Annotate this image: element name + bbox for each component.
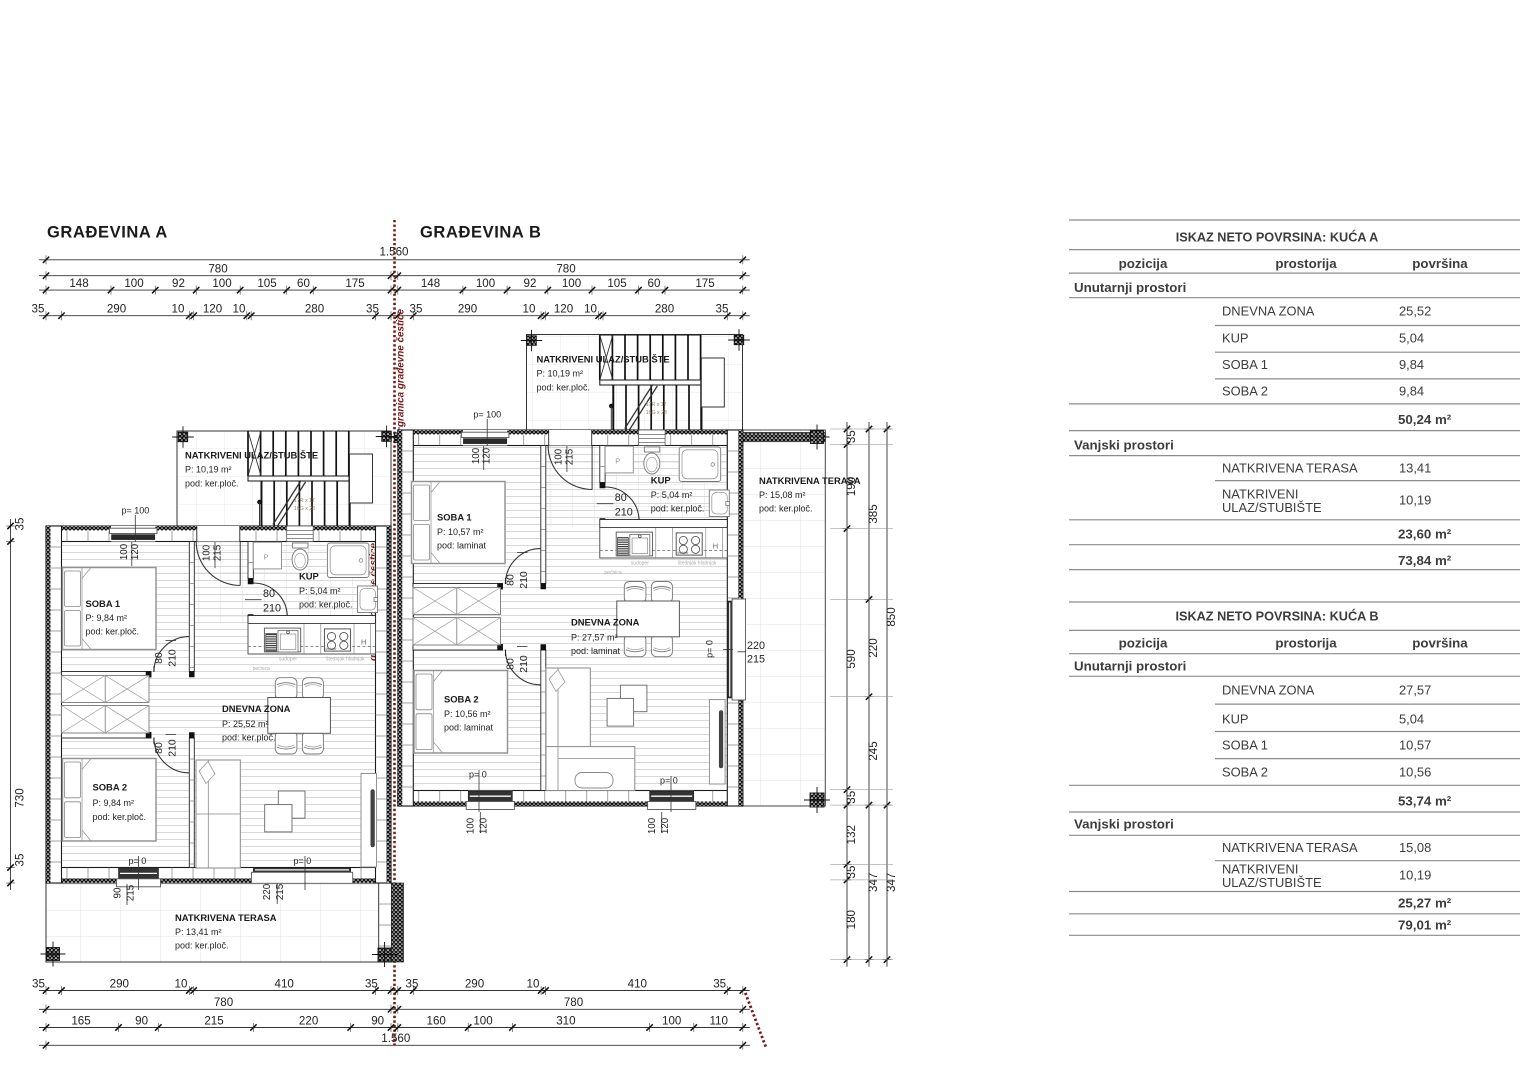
svg-text:KUP: KUP (1222, 331, 1249, 346)
svg-text:10: 10 (175, 977, 188, 990)
svg-text:p= 0: p= 0 (660, 776, 678, 786)
svg-text:p= 0: p= 0 (129, 856, 147, 866)
svg-text:210: 210 (615, 507, 633, 519)
svg-text:NATKRIVENI ULAZ/STUBIŠTE: NATKRIVENI ULAZ/STUBIŠTE (185, 450, 318, 461)
svg-text:13,41: 13,41 (1399, 461, 1431, 476)
svg-text:100: 100 (202, 544, 213, 561)
svg-text:štednjak hladnjak: štednjak hladnjak (326, 657, 365, 663)
svg-text:ULAZ/STUBIŠTE: ULAZ/STUBIŠTE (1222, 875, 1322, 890)
svg-text:sudoper: sudoper (279, 657, 297, 663)
svg-text:347: 347 (885, 873, 898, 892)
svg-text:GRAĐEVINA B: GRAĐEVINA B (420, 224, 542, 242)
svg-text:80: 80 (263, 588, 275, 600)
svg-text:DNEVNA ZONA: DNEVNA ZONA (222, 703, 291, 714)
svg-text:110: 110 (709, 1014, 727, 1027)
svg-text:P: P (264, 553, 269, 562)
svg-text:220: 220 (299, 1014, 318, 1027)
svg-text:245: 245 (867, 741, 880, 760)
svg-text:prostorija: prostorija (1275, 256, 1337, 271)
svg-text:KUP: KUP (299, 571, 319, 582)
svg-text:pećnica: pećnica (253, 666, 270, 672)
svg-text:10: 10 (527, 977, 540, 990)
svg-text:100: 100 (662, 1014, 681, 1027)
svg-text:SOBA 2: SOBA 2 (1222, 765, 1268, 780)
svg-text:100: 100 (471, 447, 482, 464)
svg-text:60: 60 (297, 277, 310, 290)
svg-text:220: 220 (867, 638, 880, 657)
svg-text:35: 35 (365, 977, 378, 990)
svg-text:16G x 28: 16G x 28 (294, 506, 315, 512)
svg-text:105: 105 (257, 277, 276, 290)
svg-text:120: 120 (482, 447, 493, 464)
svg-text:P: 10,57 m²: P: 10,57 m² (437, 527, 484, 537)
svg-text:280: 280 (655, 303, 674, 316)
svg-text:NATKRIVENA TERASA: NATKRIVENA TERASA (1222, 461, 1358, 476)
svg-text:148: 148 (69, 277, 88, 290)
svg-text:92: 92 (524, 277, 537, 290)
svg-text:120: 120 (660, 817, 671, 834)
svg-text:P: 27,57 m²: P: 27,57 m² (571, 633, 618, 643)
svg-text:P: 10,19 m²: P: 10,19 m² (537, 369, 584, 379)
svg-text:pozicija: pozicija (1119, 636, 1168, 651)
svg-text:120: 120 (554, 303, 573, 316)
svg-text:SOBA 1: SOBA 1 (1222, 738, 1268, 753)
svg-text:NATKRIVENA TERASA: NATKRIVENA TERASA (175, 912, 277, 923)
svg-text:80: 80 (615, 492, 627, 504)
svg-text:100: 100 (562, 277, 581, 290)
svg-text:10,56: 10,56 (1399, 765, 1431, 780)
svg-text:27,57: 27,57 (1399, 683, 1431, 698)
svg-text:P: 5,04 m²: P: 5,04 m² (651, 490, 693, 500)
svg-text:pod: ker.ploč.: pod: ker.ploč. (651, 504, 705, 514)
svg-text:35: 35 (14, 854, 27, 867)
svg-text:P: 9,84 m²: P: 9,84 m² (86, 613, 128, 623)
svg-text:SOBA 1: SOBA 1 (437, 512, 472, 523)
svg-text:100: 100 (124, 277, 143, 290)
svg-text:KUP: KUP (651, 475, 671, 486)
svg-text:80: 80 (153, 652, 165, 664)
svg-text:p= 0: p= 0 (294, 856, 312, 866)
svg-text:pozicija: pozicija (1119, 256, 1168, 271)
svg-text:pod: ker.ploč.: pod: ker.ploč. (86, 627, 140, 637)
svg-text:DNEVNA ZONA: DNEVNA ZONA (1222, 683, 1315, 698)
svg-text:5,04: 5,04 (1399, 712, 1424, 727)
svg-text:148: 148 (421, 277, 440, 290)
svg-text:P: P (615, 457, 620, 466)
svg-text:80: 80 (505, 574, 517, 586)
svg-text:290: 290 (107, 303, 126, 316)
svg-text:100: 100 (212, 277, 231, 290)
svg-text:25,27 m²: 25,27 m² (1398, 896, 1452, 911)
svg-text:10: 10 (584, 303, 597, 316)
svg-text:100: 100 (647, 817, 658, 834)
svg-text:215: 215 (564, 448, 575, 465)
svg-text:780: 780 (556, 263, 575, 276)
svg-text:10: 10 (233, 303, 246, 316)
svg-text:280: 280 (305, 303, 324, 316)
svg-text:780: 780 (208, 263, 227, 276)
svg-text:pod: ker.ploč.: pod: ker.ploč. (175, 941, 229, 951)
svg-text:165: 165 (71, 1014, 90, 1027)
svg-text:DNEVNA ZONA: DNEVNA ZONA (571, 617, 640, 628)
svg-text:215: 215 (212, 544, 223, 561)
svg-text:SOBA 2: SOBA 2 (93, 782, 128, 793)
svg-text:210: 210 (167, 649, 179, 667)
svg-text:Vanjski prostori: Vanjski prostori (1074, 817, 1174, 832)
svg-text:215: 215 (204, 1014, 223, 1027)
svg-text:pod: ker.ploč.: pod: ker.ploč. (222, 733, 276, 743)
svg-text:210: 210 (518, 655, 530, 673)
svg-text:35: 35 (32, 303, 45, 316)
svg-text:290: 290 (458, 303, 477, 316)
svg-text:SOBA 2: SOBA 2 (444, 694, 479, 705)
svg-text:pod: laminat: pod: laminat (444, 723, 494, 733)
svg-text:220: 220 (747, 640, 765, 652)
svg-text:730: 730 (14, 788, 27, 807)
svg-text:p= 0: p= 0 (469, 770, 487, 780)
svg-text:100: 100 (466, 817, 477, 834)
svg-text:P: 15,08 m²: P: 15,08 m² (759, 490, 806, 500)
svg-text:347: 347 (867, 873, 880, 892)
svg-text:210: 210 (518, 571, 530, 589)
svg-text:35: 35 (406, 977, 419, 990)
svg-text:10,19: 10,19 (1399, 868, 1431, 883)
svg-text:120: 120 (130, 543, 141, 560)
svg-text:SOBA 1: SOBA 1 (86, 598, 121, 609)
svg-text:P: 25,52 m²: P: 25,52 m² (222, 719, 269, 729)
svg-text:9,84: 9,84 (1399, 384, 1424, 399)
svg-text:Vanjski prostori: Vanjski prostori (1074, 438, 1174, 453)
svg-text:120: 120 (203, 303, 222, 316)
svg-text:79,01 m²: 79,01 m² (1398, 918, 1452, 933)
svg-text:410: 410 (628, 977, 647, 990)
svg-text:120: 120 (479, 817, 490, 834)
svg-text:50,24 m²: 50,24 m² (1398, 412, 1452, 427)
svg-text:površina: površina (1412, 636, 1468, 651)
svg-text:p= 100: p= 100 (122, 506, 150, 516)
svg-text:16G x 28: 16G x 28 (646, 410, 667, 416)
svg-text:132: 132 (845, 825, 858, 844)
svg-text:73,84 m²: 73,84 m² (1398, 553, 1452, 568)
svg-text:pod: ker.ploč.: pod: ker.ploč. (299, 600, 353, 610)
svg-text:210: 210 (167, 739, 179, 757)
svg-text:Unutarnji prostori: Unutarnji prostori (1074, 280, 1186, 295)
svg-text:35: 35 (845, 791, 858, 804)
svg-text:ISKAZ NETO POVRSINA: KUĆA B: ISKAZ NETO POVRSINA: KUĆA B (1175, 609, 1378, 624)
svg-text:175: 175 (695, 277, 714, 290)
svg-text:100: 100 (554, 448, 565, 465)
svg-text:590: 590 (845, 649, 858, 668)
svg-text:sudoper: sudoper (631, 561, 649, 567)
svg-text:granica građevne čestice: granica građevne čestice (396, 308, 407, 428)
svg-text:160: 160 (427, 1014, 446, 1027)
svg-text:35: 35 (845, 430, 858, 443)
svg-text:780: 780 (214, 996, 233, 1009)
svg-text:90: 90 (135, 1014, 148, 1027)
svg-text:10: 10 (523, 303, 536, 316)
svg-text:pod: ker.ploč.: pod: ker.ploč. (185, 479, 239, 489)
svg-text:105: 105 (607, 277, 626, 290)
svg-text:290: 290 (465, 977, 484, 990)
svg-text:H: H (361, 638, 366, 647)
svg-text:P: 9,84 m²: P: 9,84 m² (93, 798, 135, 808)
svg-text:100: 100 (473, 1014, 492, 1027)
svg-text:780: 780 (564, 996, 583, 1009)
svg-text:215: 215 (747, 654, 765, 666)
svg-text:100: 100 (476, 277, 495, 290)
svg-text:H: H (713, 542, 718, 551)
svg-text:ISKAZ NETO POVRSINA: KUĆA A: ISKAZ NETO POVRSINA: KUĆA A (1176, 230, 1379, 245)
svg-text:površina: površina (1412, 256, 1468, 271)
svg-text:pod: ker.ploč.: pod: ker.ploč. (537, 383, 591, 393)
svg-text:175: 175 (345, 277, 364, 290)
svg-text:pod: ker.ploč.: pod: ker.ploč. (93, 812, 147, 822)
svg-text:17R x 17: 17R x 17 (646, 402, 667, 408)
svg-text:KUP: KUP (1222, 712, 1249, 727)
svg-text:15,08: 15,08 (1399, 840, 1431, 855)
svg-text:P: 10,56 m²: P: 10,56 m² (444, 709, 491, 719)
svg-text:850: 850 (885, 607, 898, 626)
svg-text:23,60 m²: 23,60 m² (1398, 527, 1452, 542)
svg-text:17R x 17: 17R x 17 (294, 498, 315, 504)
svg-text:25,52: 25,52 (1399, 304, 1431, 319)
svg-text:P: 5,04 m²: P: 5,04 m² (299, 586, 341, 596)
svg-text:180: 180 (845, 910, 858, 929)
svg-text:100: 100 (119, 543, 130, 560)
svg-text:pod: laminat: pod: laminat (437, 541, 487, 551)
svg-text:p= 0: p= 0 (705, 640, 715, 658)
svg-text:90: 90 (113, 887, 124, 898)
svg-text:5,04: 5,04 (1399, 331, 1424, 346)
svg-text:80: 80 (505, 658, 517, 670)
svg-text:1.560: 1.560 (379, 246, 408, 259)
svg-text:35: 35 (14, 518, 27, 531)
svg-text:ULAZ/STUBIŠTE: ULAZ/STUBIŠTE (1222, 500, 1322, 515)
svg-text:pod: ker.ploč.: pod: ker.ploč. (759, 504, 813, 514)
svg-text:35: 35 (32, 977, 45, 990)
svg-text:210: 210 (263, 603, 281, 615)
svg-text:pod: laminat: pod: laminat (571, 646, 621, 656)
svg-text:SOBA 1: SOBA 1 (1222, 357, 1268, 372)
svg-text:53,74 m²: 53,74 m² (1398, 794, 1452, 809)
svg-text:1.560: 1.560 (381, 1032, 410, 1045)
svg-text:215: 215 (126, 884, 137, 901)
svg-text:215: 215 (275, 883, 286, 900)
svg-text:35: 35 (713, 977, 726, 990)
svg-text:35: 35 (366, 303, 379, 316)
svg-text:190: 190 (845, 477, 858, 496)
svg-text:P: 10,19 m²: P: 10,19 m² (185, 465, 232, 475)
svg-text:štednjak hladnjak: štednjak hladnjak (678, 561, 717, 567)
svg-text:35: 35 (716, 303, 729, 316)
svg-text:90: 90 (371, 1014, 384, 1027)
svg-text:Unutarnji prostori: Unutarnji prostori (1074, 659, 1186, 674)
svg-text:prostorija: prostorija (1275, 636, 1337, 651)
svg-text:p= 100: p= 100 (473, 410, 501, 420)
svg-text:SOBA 2: SOBA 2 (1222, 384, 1268, 399)
svg-text:35: 35 (845, 866, 858, 879)
svg-text:10: 10 (172, 303, 185, 316)
svg-text:80: 80 (153, 742, 165, 754)
svg-text:NATKRIVENI ULAZ/STUBIŠTE: NATKRIVENI ULAZ/STUBIŠTE (537, 354, 670, 365)
svg-text:10,57: 10,57 (1399, 738, 1431, 753)
svg-text:385: 385 (867, 504, 880, 523)
svg-text:35: 35 (410, 303, 423, 316)
svg-text:GRAĐEVINA A: GRAĐEVINA A (47, 224, 168, 242)
svg-text:310: 310 (556, 1014, 575, 1027)
svg-text:P: 13,41 m²: P: 13,41 m² (175, 927, 222, 937)
svg-text:92: 92 (172, 277, 185, 290)
svg-text:NATKRIVENA TERASA: NATKRIVENA TERASA (1222, 840, 1358, 855)
svg-text:220: 220 (262, 883, 273, 900)
svg-text:pećnica: pećnica (604, 570, 621, 576)
svg-text:10,19: 10,19 (1399, 493, 1431, 508)
svg-text:410: 410 (275, 977, 294, 990)
svg-text:9,84: 9,84 (1399, 357, 1424, 372)
svg-text:60: 60 (648, 277, 661, 290)
svg-text:DNEVNA ZONA: DNEVNA ZONA (1222, 304, 1315, 319)
svg-text:290: 290 (110, 977, 129, 990)
